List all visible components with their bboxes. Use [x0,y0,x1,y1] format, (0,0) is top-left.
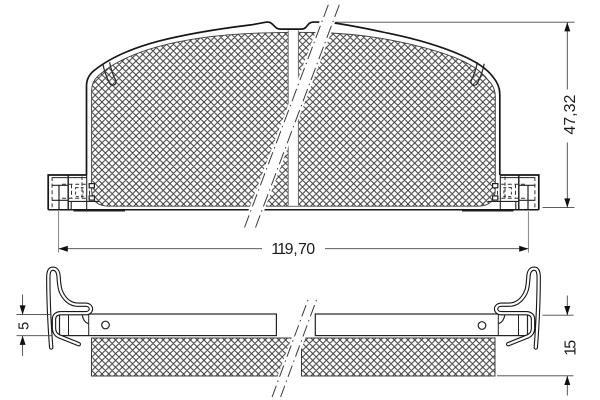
svg-text:47,32: 47,32 [562,94,579,134]
svg-text:119,70: 119,70 [271,241,315,258]
svg-text:5: 5 [17,322,33,330]
svg-text:15: 15 [562,340,579,356]
